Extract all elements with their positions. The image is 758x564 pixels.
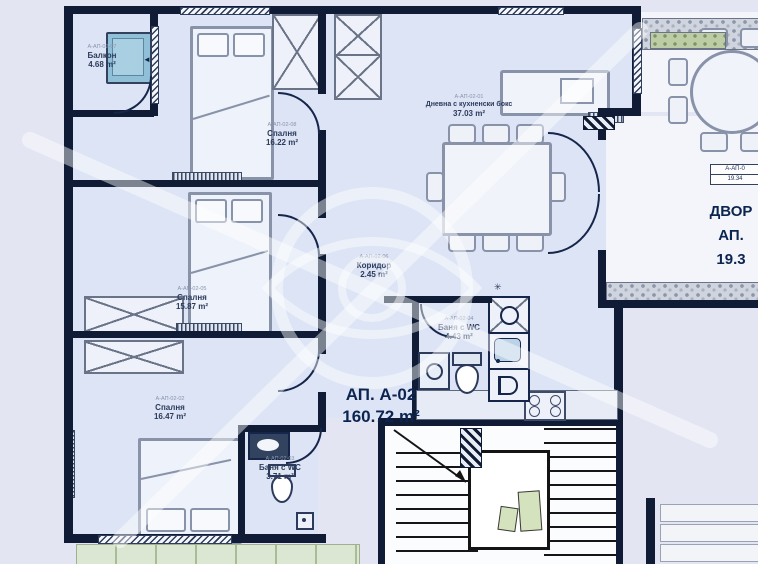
wall-balcony-bottom [64, 110, 154, 117]
pillow [231, 199, 263, 223]
room-area: 4.43 m² [424, 332, 494, 342]
yard-tag-code: А-АП-0 [711, 165, 758, 175]
room-code: А-АП-02-04 [424, 316, 494, 323]
yard-tag-area: 19.34 [711, 175, 758, 184]
wardrobe-bedroom-top [272, 14, 322, 90]
terrace-slat [660, 504, 758, 522]
room-code: А-АП-02-01 [404, 94, 534, 101]
elevator-car-a [497, 506, 518, 532]
small-basin [296, 512, 314, 530]
radiator-yard-door [583, 116, 615, 130]
kitchen-sink [488, 296, 530, 334]
room-name: Коридор [336, 261, 412, 271]
wall-stairwell-right [616, 418, 623, 564]
room-label-balcony: А-АП-02-07 Балкон 4.68 m² [72, 44, 132, 70]
sink-oval [257, 439, 279, 451]
dishwasher [488, 332, 530, 370]
wardrobe-bedroom-bottom [84, 340, 184, 374]
wardrobe-living-a [334, 14, 382, 58]
pillow [190, 508, 230, 532]
room-name: Дневна с кухненски бокс [404, 101, 534, 109]
chair [668, 96, 688, 124]
dining-table [442, 142, 552, 236]
chair [668, 58, 688, 86]
wall-bedroom2-3 [64, 331, 326, 338]
room-label-bedroom-top: А-АП-02-08 Спалня 16.22 m² [238, 122, 326, 148]
stair-column [460, 428, 482, 468]
apartment-floor-ne [614, 14, 632, 110]
room-code: А-АП-02-06 [336, 254, 412, 261]
apartment-area: 160.72 m² [326, 406, 436, 428]
room-name: Баня с WC [424, 323, 494, 333]
window-bedroom-top [180, 7, 270, 15]
yard-line3: 19.3 [704, 248, 758, 272]
room-label-bath-small: А-АП-02-03 Баня с WC 3.71 m² [240, 456, 320, 482]
chair [516, 124, 544, 144]
chair [700, 132, 728, 152]
wall-left [64, 6, 73, 543]
wall-spine-4 [318, 392, 326, 426]
garden-strip-bottom [76, 544, 360, 564]
yard-line1: ДВОР [704, 200, 758, 224]
window-bedroom-bottom [98, 535, 232, 544]
room-code: А-АП-02-03 [240, 456, 320, 463]
room-code: А-АП-02-05 [148, 286, 236, 293]
room-name: Спалня [126, 403, 214, 413]
fridge [488, 368, 530, 402]
chair [740, 132, 758, 152]
chair [740, 28, 758, 48]
burner [550, 395, 561, 406]
stairs-left-flight [396, 452, 478, 560]
planter-strip [650, 32, 726, 49]
terrace-slat [660, 544, 758, 562]
window-living-right [633, 28, 642, 94]
room-label-corridor: А-АП-02-06 Коридор 2.45 m² [336, 254, 412, 280]
terrace-slat [660, 524, 758, 542]
room-name: Спалня [148, 293, 236, 303]
pillow [146, 508, 186, 532]
gravel-band-yard [606, 282, 758, 302]
room-area: 16.22 m² [238, 138, 326, 148]
wall-spine-3 [318, 254, 326, 354]
dot [302, 518, 306, 522]
floor-plan-canvas: ◄ [0, 0, 758, 564]
yard-tag-box: А-АП-0 19.34 [710, 164, 758, 185]
room-label-bedroom-middle: А-АП-02-05 Спалня 15.87 m² [148, 286, 236, 312]
apartment-number: АП. А-02 [326, 384, 436, 406]
room-name: Баня с WC [240, 463, 320, 473]
wall-bath1-top [412, 296, 492, 303]
apartment-label: АП. А-02 160.72 m² [326, 384, 436, 428]
room-label-bedroom-bottom: А-АП-02-02 Спалня 16.47 m² [126, 396, 214, 422]
room-code: А-АП-02-02 [126, 396, 214, 403]
wall-bedroom1-2 [64, 180, 326, 187]
burner [529, 406, 540, 417]
wall-corridor-living [384, 296, 416, 303]
wall-spine-1 [318, 6, 326, 94]
room-code: А-АП-02-07 [72, 44, 132, 51]
yard-line2: АП. [704, 224, 758, 248]
pillow [233, 33, 265, 57]
room-label-living: А-АП-02-01 Дневна с кухненски бокс 37.03… [404, 94, 534, 119]
wall-se-stub [646, 498, 655, 564]
room-name: Балкон [72, 51, 132, 61]
window-arrow-icon: ◄ [143, 55, 151, 64]
dot [496, 359, 500, 363]
elevator-car-b [518, 490, 543, 531]
room-code: А-АП-02-08 [238, 122, 326, 129]
room-area: 2.45 m² [336, 270, 412, 280]
chair [448, 124, 476, 144]
pillow [195, 199, 227, 223]
yard-label: ДВОР АП. 19.3 [704, 200, 758, 272]
wall-stairwell-left [378, 418, 385, 564]
wm-door [426, 363, 443, 380]
island-sink [560, 78, 594, 104]
chair [482, 124, 510, 144]
room-area: 15.87 m² [148, 302, 236, 312]
room-area: 4.68 m² [72, 60, 132, 70]
wall-bath2-left [238, 425, 245, 543]
burner [529, 395, 540, 406]
stove [524, 391, 566, 421]
pillow [197, 33, 229, 57]
room-area: 16.47 m² [126, 412, 214, 422]
room-area: 37.03 m² [404, 109, 534, 119]
vent-icon: ✳ [494, 282, 502, 293]
wardrobe-living-b [334, 54, 382, 100]
window-living-top [498, 7, 564, 15]
fridge-symbol [498, 376, 518, 395]
sink-bowl [500, 306, 519, 325]
window-balcony [151, 26, 159, 104]
burner [550, 406, 561, 417]
room-area: 3.71 m² [240, 472, 320, 482]
room-name: Спалня [238, 129, 326, 139]
room-label-bath-main: А-АП-02-04 Баня с WC 4.43 m² [424, 316, 494, 342]
stairs-right-flight [544, 428, 616, 560]
